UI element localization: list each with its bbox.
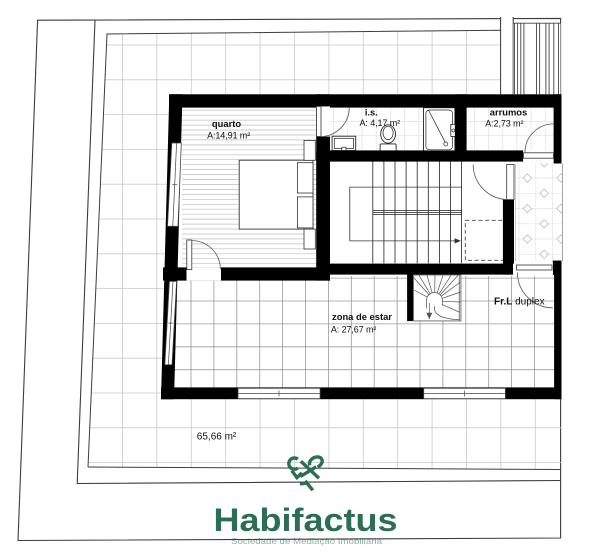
svg-text:Habifactus: Habifactus (214, 502, 398, 538)
svg-text:A:2,73 m²: A:2,73 m² (485, 118, 523, 128)
svg-text:A: 4,17 m²: A: 4,17 m² (360, 118, 401, 128)
svg-text:A:14,91 m²: A:14,91 m² (207, 131, 250, 141)
svg-text:Fr.L duplex: Fr.L duplex (494, 297, 545, 308)
svg-text:zona de estar: zona de estar (332, 311, 392, 322)
svg-text:i.s.: i.s. (365, 107, 378, 117)
svg-text:Sociedade de Mediação Imobiliá: Sociedade de Mediação Imobiliária (231, 536, 382, 546)
svg-text:65,66 m²: 65,66 m² (197, 432, 237, 443)
svg-text:quarto: quarto (212, 118, 241, 129)
svg-text:A: 27,67 m²: A: 27,67 m² (331, 324, 377, 334)
svg-text:arrumos: arrumos (490, 107, 528, 118)
